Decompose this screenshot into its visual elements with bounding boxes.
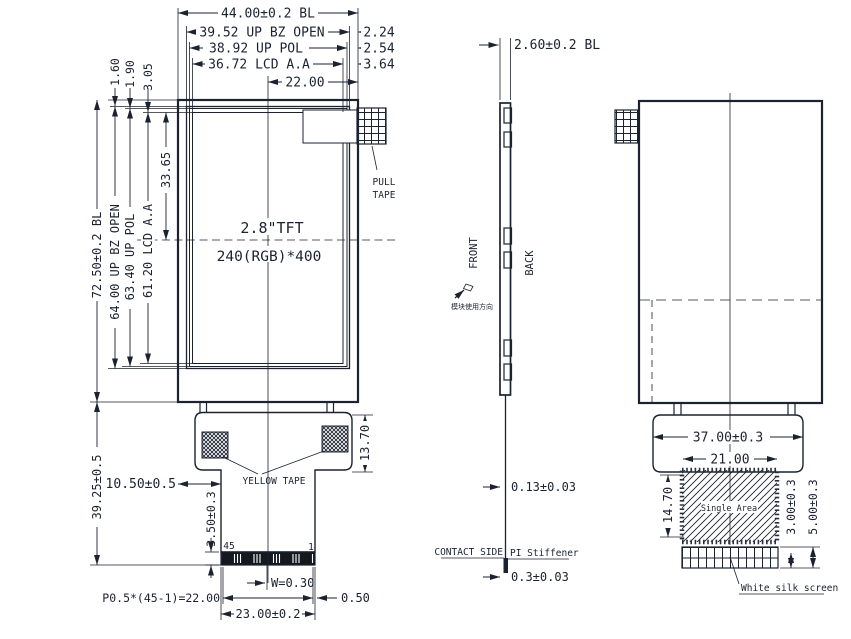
dim-aa-width: 36.72 LCD A.A [208,58,310,73]
dim-back-shoulder-width: 37.00±0.3 [693,431,763,446]
dim-bz-right-margin: 2.24 [363,26,394,41]
paper-background [0,0,851,639]
dim-pol-right-margin: 2.54 [363,42,394,57]
dim-bz-top-margin: 1.60 [108,58,122,86]
pull-tape-label-1: PULL [373,177,396,188]
contact-side-label: CONTACT SIDE [434,547,503,558]
pull-tape-notch [303,110,357,143]
dim-single-area-height: 14.70 [661,487,675,523]
yellow-tape-left-hatch [202,432,228,458]
dim-tail-height: 39.25±0.5 [90,454,104,519]
dim-pol-width: 38.92 UP POL [209,42,303,57]
pin-number-1: 1 [308,542,314,553]
single-area-label: Single Area [701,504,757,514]
orientation-note: 模块使用方向 [451,302,493,311]
front-side-label: FRONT [468,237,480,269]
lcd-outline-drawing: 44.00±0.2 BL 39.52 UP BZ OPEN 38.92 UP P… [0,0,851,639]
dim-stiffener-thickness: 0.3±0.03 [511,570,569,584]
back-tape-hatch [615,110,639,143]
dim-silk-offset-a: 3.00±0.3 [784,479,798,534]
panel-resolution-label: 240(RGB)*400 [217,249,322,265]
white-silk-screen-label: White silk screen [741,583,838,594]
dim-connector-height: 3.50±0.3 [204,491,218,546]
dim-bz-open-width: 39.52 UP BZ OPEN [199,26,324,41]
pull-tape-label-2: TAPE [373,190,396,201]
yellow-tape-label: YELLOW TAPE [243,476,306,487]
dim-tail-left-offset: 10.50±0.5 [106,477,176,492]
dim-single-area-width: 21.00 [710,453,749,468]
dim-aa-height: 61.20 LCD A.A [141,203,155,298]
pi-stiffener-bar [504,558,509,573]
dim-center-height: 33.65 [159,152,173,188]
panel-size-label: 2.8"TFT [240,219,303,237]
dim-connector-width: 23.00±0.2 [235,607,300,621]
dim-bz-open-height: 64.00 UP BZ OPEN [108,204,122,320]
dim-aa-top-margin: 3.05 [141,63,155,91]
dim-bl-width: 44.00±0.2 BL [221,7,315,22]
pin-number-45: 45 [223,541,234,552]
dim-pin-edge-margin: 0.50 [341,591,370,605]
pull-tape-hatch [357,108,386,144]
yellow-tape-right-hatch [322,426,348,452]
dim-module-thickness: 2.60±0.2 BL [514,38,600,53]
dim-shoulder-height: 13.70 [358,425,372,461]
dim-silk-offset-b: 5.00±0.3 [806,479,820,534]
dim-pin-width: W=0.30 [271,576,314,590]
dim-pin-pitch: P0.5*(45-1)=22.00 [102,591,220,605]
pi-stiffener-label: PI Stiffener [510,548,579,559]
dim-fpc-thickness: 0.13±0.03 [511,480,576,494]
dim-pol-top-margin: 1.90 [123,60,137,88]
dim-bl-height: 72.50±0.2 BL [90,212,104,299]
dim-pol-height: 63.40 UP POL [123,214,137,301]
dim-half-width: 22.00 [285,76,324,91]
back-side-label: BACK [524,250,536,276]
dim-aa-right-margin: 3.64 [363,58,394,73]
